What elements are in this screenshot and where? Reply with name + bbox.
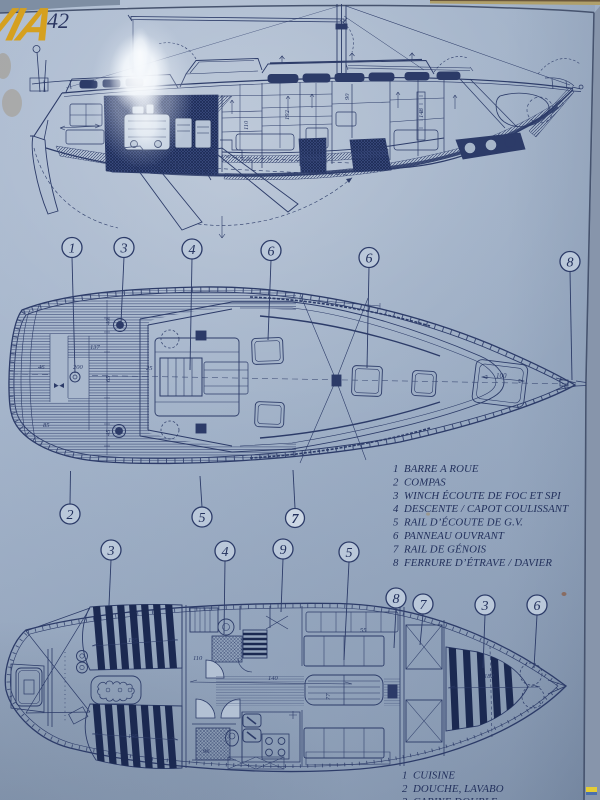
- svg-text:1: 1: [69, 242, 76, 257]
- svg-text:5: 5: [346, 546, 353, 561]
- svg-text:5: 5: [199, 511, 206, 526]
- svg-text:110: 110: [193, 655, 203, 662]
- svg-text:3: 3: [481, 599, 489, 614]
- svg-text:110: 110: [243, 120, 250, 130]
- svg-text:6: 6: [366, 252, 373, 267]
- svg-text:3: 3: [120, 242, 128, 257]
- svg-text:77: 77: [325, 693, 332, 700]
- svg-text:65: 65: [105, 375, 112, 382]
- svg-text:46: 46: [38, 364, 45, 371]
- svg-text:85: 85: [43, 422, 50, 429]
- svg-text:3 CABINE DOUBLE: 3 CABINE DOUBLE: [401, 796, 498, 800]
- svg-text:42: 42: [47, 8, 69, 33]
- svg-text:140: 140: [268, 675, 279, 682]
- svg-text:6 PANNEAU OUVRANT: 6 PANNEAU OUVRANT: [393, 530, 505, 542]
- svg-text:137: 137: [90, 344, 101, 351]
- svg-text:7: 7: [292, 512, 300, 527]
- svg-text:2 COMPAS: 2 COMPAS: [393, 476, 446, 488]
- svg-text:100: 100: [496, 372, 507, 380]
- svg-text:9: 9: [280, 543, 287, 558]
- svg-text:96: 96: [203, 748, 210, 755]
- svg-text:2 DOUCHE, LAVABO: 2 DOUCHE, LAVABO: [402, 783, 504, 795]
- svg-text:2: 2: [67, 508, 74, 523]
- svg-text:1 BARRE A ROUE: 1 BARRE A ROUE: [393, 463, 479, 475]
- svg-text:5 RAIL D’ÉCOUTE DE G.V.: 5 RAIL D’ÉCOUTE DE G.V.: [393, 517, 523, 529]
- svg-text:90: 90: [344, 93, 351, 100]
- svg-text:148: 148: [418, 108, 425, 119]
- svg-text:8 FERRURE D’ÉTRAVE / DAVIER: 8 FERRURE D’ÉTRAVE / DAVIER: [393, 557, 552, 569]
- svg-text:6: 6: [534, 599, 541, 614]
- svg-text:4: 4: [222, 545, 229, 560]
- svg-text:4: 4: [189, 243, 196, 258]
- svg-text:7: 7: [420, 598, 428, 613]
- svg-text:3: 3: [107, 544, 115, 559]
- svg-text:195: 195: [128, 637, 139, 644]
- svg-text:4 DESCENTE / CAPOT COULISSANT: 4 DESCENTE / CAPOT COULISSANT: [393, 503, 569, 515]
- svg-text:1 CUISINE: 1 CUISINE: [402, 770, 455, 782]
- svg-text:8: 8: [567, 256, 574, 271]
- svg-text:40: 40: [105, 318, 112, 325]
- svg-text:55: 55: [360, 627, 367, 634]
- svg-text:8: 8: [393, 592, 400, 607]
- svg-text:7 RAIL DE GÉNOIS: 7 RAIL DE GÉNOIS: [393, 543, 487, 555]
- svg-text:195: 195: [128, 733, 139, 740]
- svg-text:192: 192: [284, 110, 291, 121]
- svg-text:182: 182: [484, 673, 495, 680]
- svg-text:6: 6: [268, 245, 275, 260]
- svg-text:25: 25: [146, 365, 153, 372]
- svg-text:45: 45: [105, 429, 112, 436]
- svg-text:3 WINCH ÉCOUTE DE FOC ET SPI: 3 WINCH ÉCOUTE DE FOC ET SPI: [392, 490, 562, 502]
